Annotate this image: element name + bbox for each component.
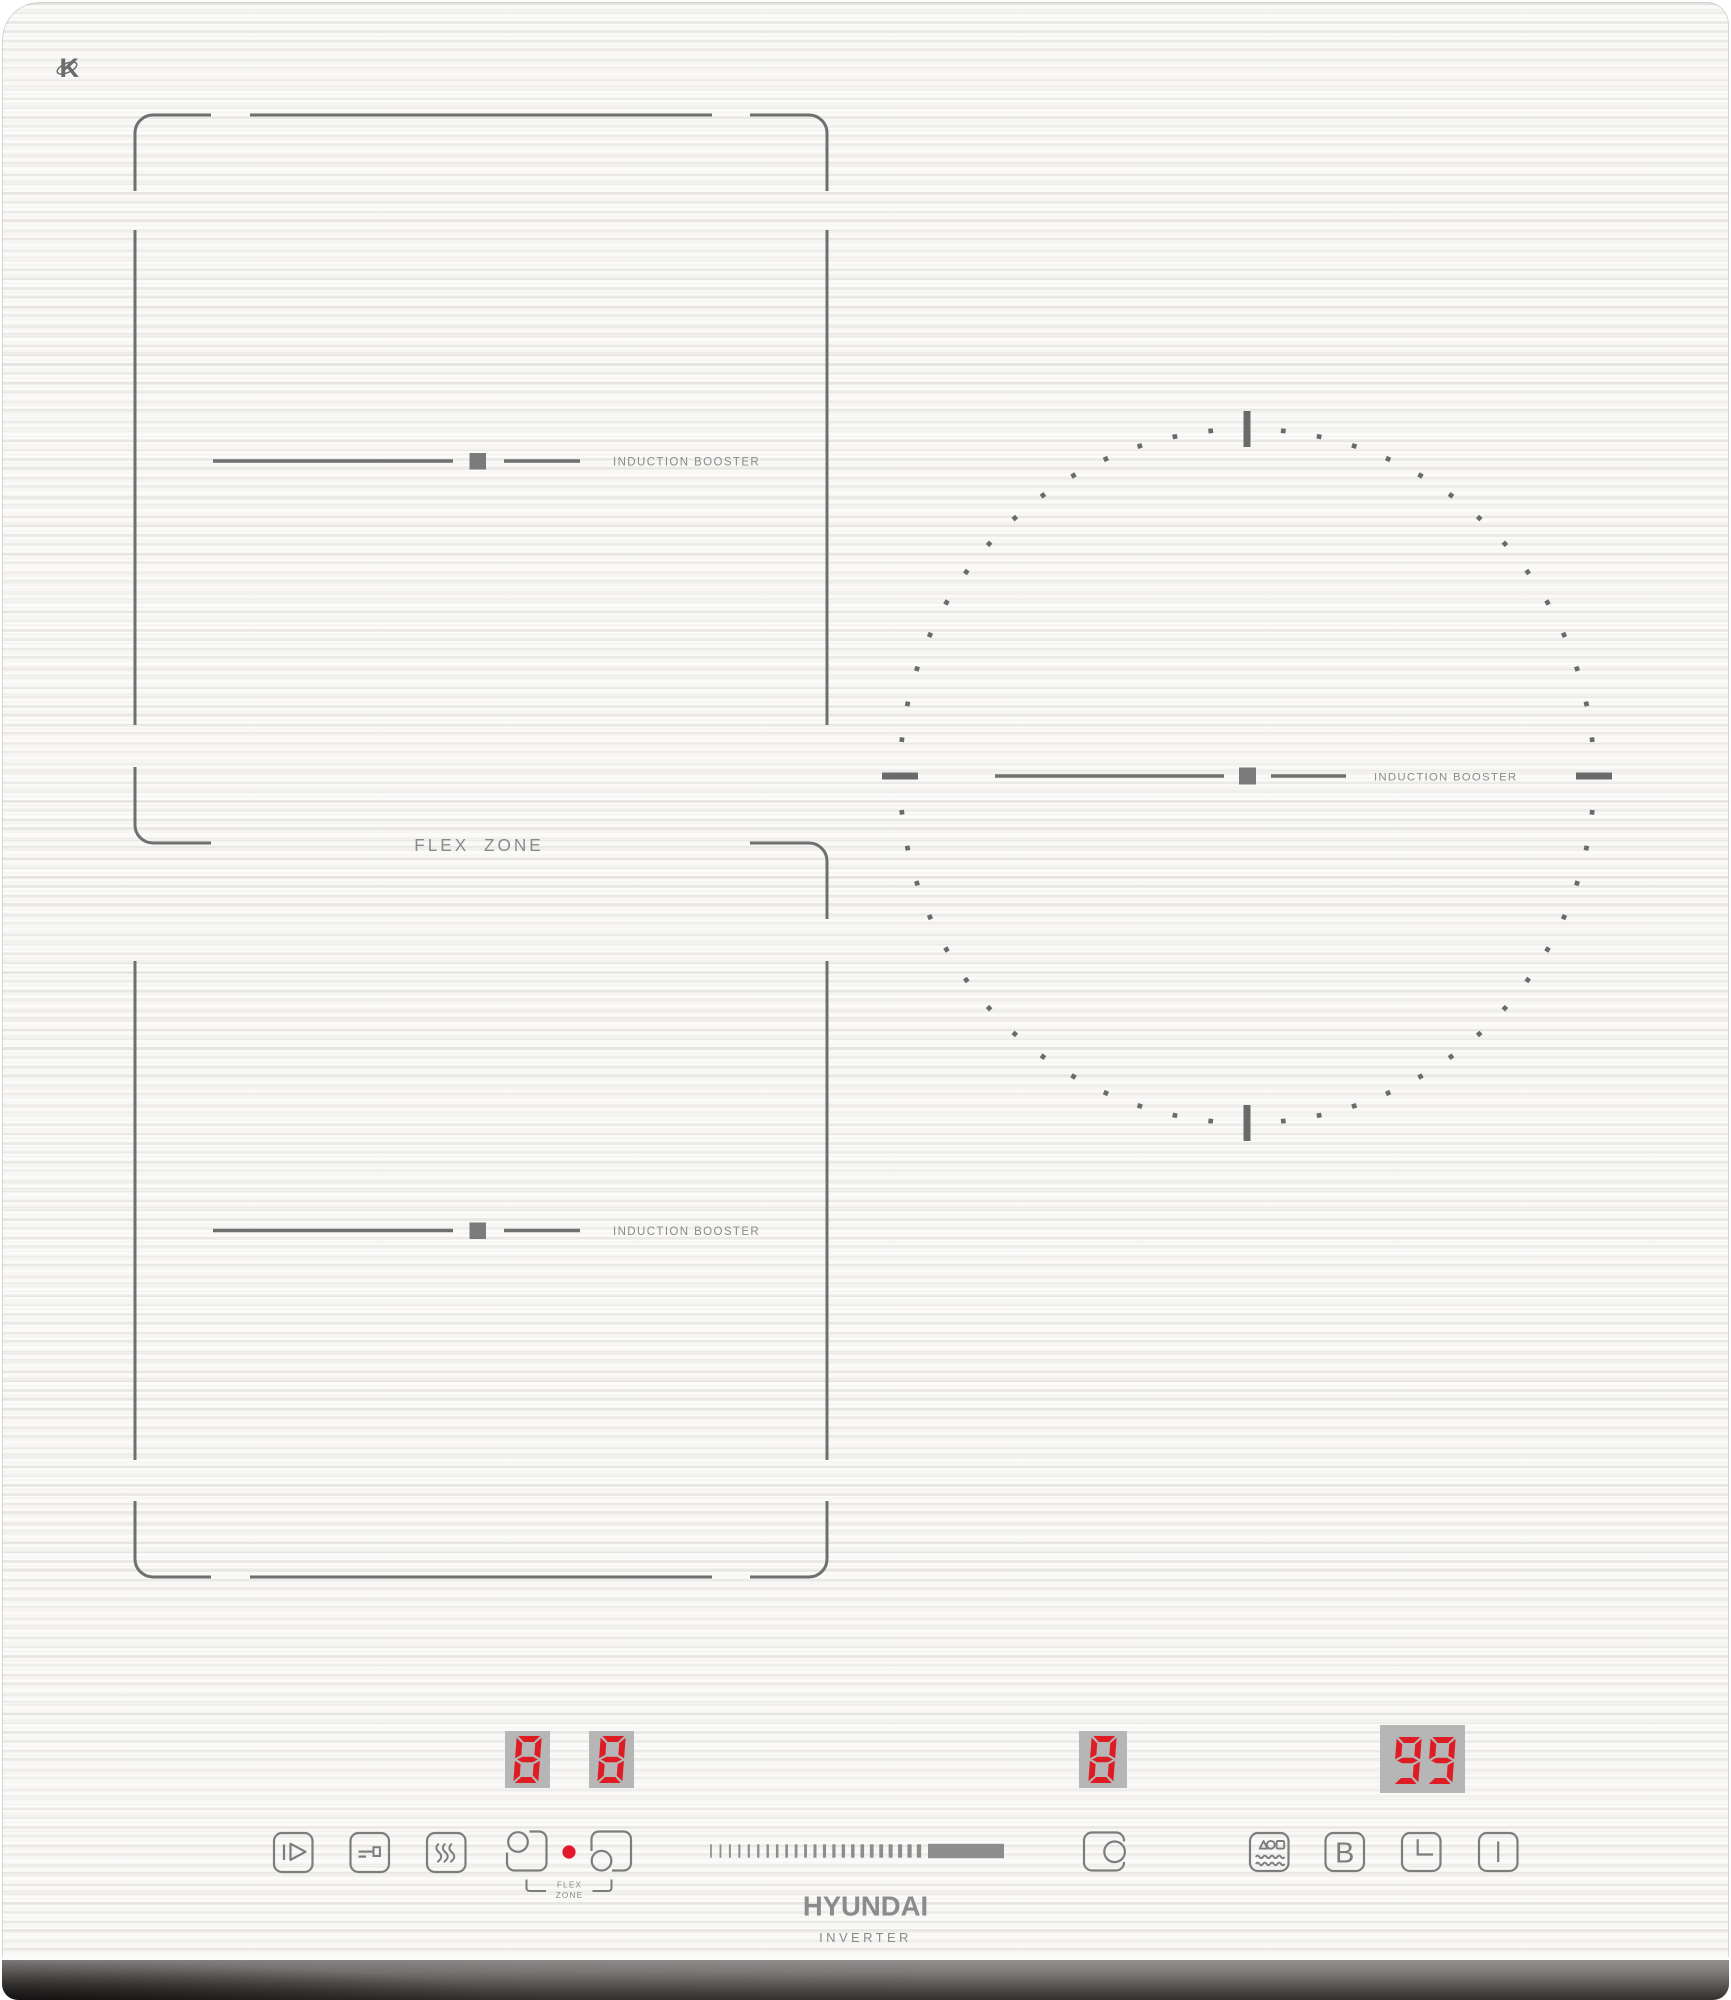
svg-text:INDUCTION BOOSTER: INDUCTION BOOSTER — [613, 457, 760, 469]
svg-text:INVERTER: INVERTER — [819, 1930, 912, 1945]
svg-text:INDUCTION BOOSTER: INDUCTION BOOSTER — [613, 1226, 760, 1238]
svg-text:FLEX: FLEX — [557, 1881, 582, 1890]
svg-text:FLEX ZONE: FLEX ZONE — [414, 835, 544, 855]
svg-text:B: B — [1335, 1838, 1354, 1870]
svg-text:ZONE: ZONE — [556, 1891, 584, 1900]
svg-text:K: K — [60, 53, 80, 83]
svg-text:INDUCTION BOOSTER: INDUCTION BOOSTER — [1374, 772, 1517, 784]
svg-text:HYUNDAI: HYUNDAI — [803, 1891, 928, 1922]
